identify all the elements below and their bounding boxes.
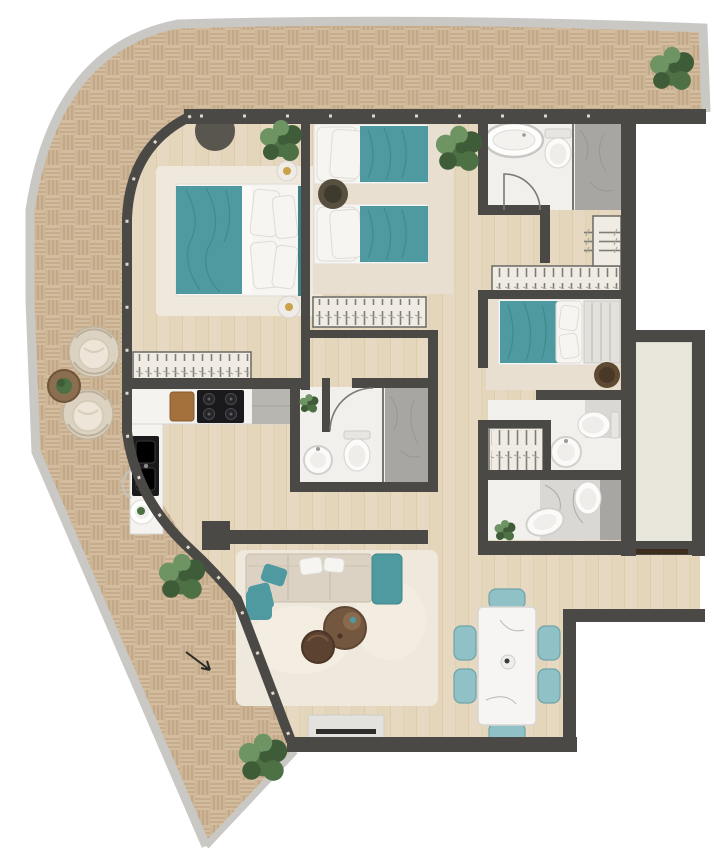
wall-midbath-top — [352, 378, 438, 388]
wall-ensuite-closet-top — [478, 420, 546, 428]
bathroom-mid-shower — [385, 388, 430, 482]
round-sink-ensuite — [551, 437, 581, 467]
twin-bed-1 — [314, 124, 428, 184]
wall-bedroom3-south — [536, 390, 622, 400]
dining-chair-right-2 — [538, 669, 560, 703]
wall-midbath-left — [290, 378, 300, 492]
floor-plan-page — [0, 0, 725, 867]
round-sink-mid — [304, 446, 332, 474]
twin-bed-2 — [314, 204, 428, 264]
entry-door — [636, 549, 688, 554]
wall-twin-bath-div — [478, 112, 488, 215]
dining-chair-right-1 — [538, 626, 560, 660]
wall-midbath-bottom — [290, 482, 438, 492]
walkin-closet-rail-horizontal — [492, 266, 620, 291]
wall-baths-west — [478, 420, 488, 550]
wall-pillar — [202, 521, 230, 550]
wall-midbath-stub — [322, 378, 330, 432]
toilet-top — [545, 129, 571, 168]
nightstand-lamp-top — [277, 161, 297, 181]
wall-divider-master-twin — [301, 112, 310, 294]
wall-entry-bottom — [563, 609, 705, 622]
elevator-shaft-floor — [634, 342, 692, 544]
tv-console — [308, 715, 384, 738]
cooktop — [197, 390, 244, 423]
wall-bottom — [287, 737, 577, 752]
bedroom3-headboard — [584, 301, 620, 363]
twin-side-table — [318, 179, 348, 209]
wall-kitchen-north — [124, 378, 302, 389]
wall-twin-south-stub — [301, 294, 310, 390]
bedroom3-stool — [594, 362, 620, 388]
toilet-ensuite — [578, 412, 619, 438]
tv — [316, 729, 376, 734]
master-closet-rail — [133, 352, 251, 379]
dining-chair-top — [489, 589, 525, 609]
nightstand-lamp-bottom — [278, 296, 300, 318]
dining-chair-left-1 — [454, 626, 476, 660]
wall-topbath-south — [478, 205, 542, 215]
teal-armchair — [372, 554, 402, 604]
wall-topbath-stub — [540, 205, 550, 263]
cutting-board — [170, 392, 194, 421]
floor-plan-canvas — [0, 0, 725, 867]
terrace-side-table — [48, 370, 80, 402]
wall-bedroom3-north — [478, 290, 622, 299]
mainbath-marble-wall — [600, 474, 621, 540]
wall-core-right — [692, 330, 705, 556]
bathtub — [485, 123, 543, 157]
ensuite-closet-rail — [489, 428, 543, 472]
master-bed-sheet — [242, 186, 252, 294]
bedroom3-blanket — [500, 301, 558, 363]
mainbath-toilet — [575, 482, 601, 514]
wall-living-north — [228, 530, 428, 544]
wicker-chair-1 — [69, 327, 119, 377]
twin-closet-rail — [313, 297, 426, 327]
wall-dining-east — [563, 609, 576, 752]
wall-bedroom3-west — [478, 296, 488, 368]
teal-ottoman — [246, 590, 272, 620]
toilet-mid — [344, 431, 370, 471]
bathroom-top-shower — [575, 122, 621, 210]
wall-ensuite-closet-right — [543, 420, 551, 476]
wall-twin-wardrobe-bottom — [310, 330, 438, 338]
dining-chair-left-2 — [454, 669, 476, 703]
coffee-table-small — [302, 631, 334, 663]
wall-hall-left — [428, 330, 438, 492]
